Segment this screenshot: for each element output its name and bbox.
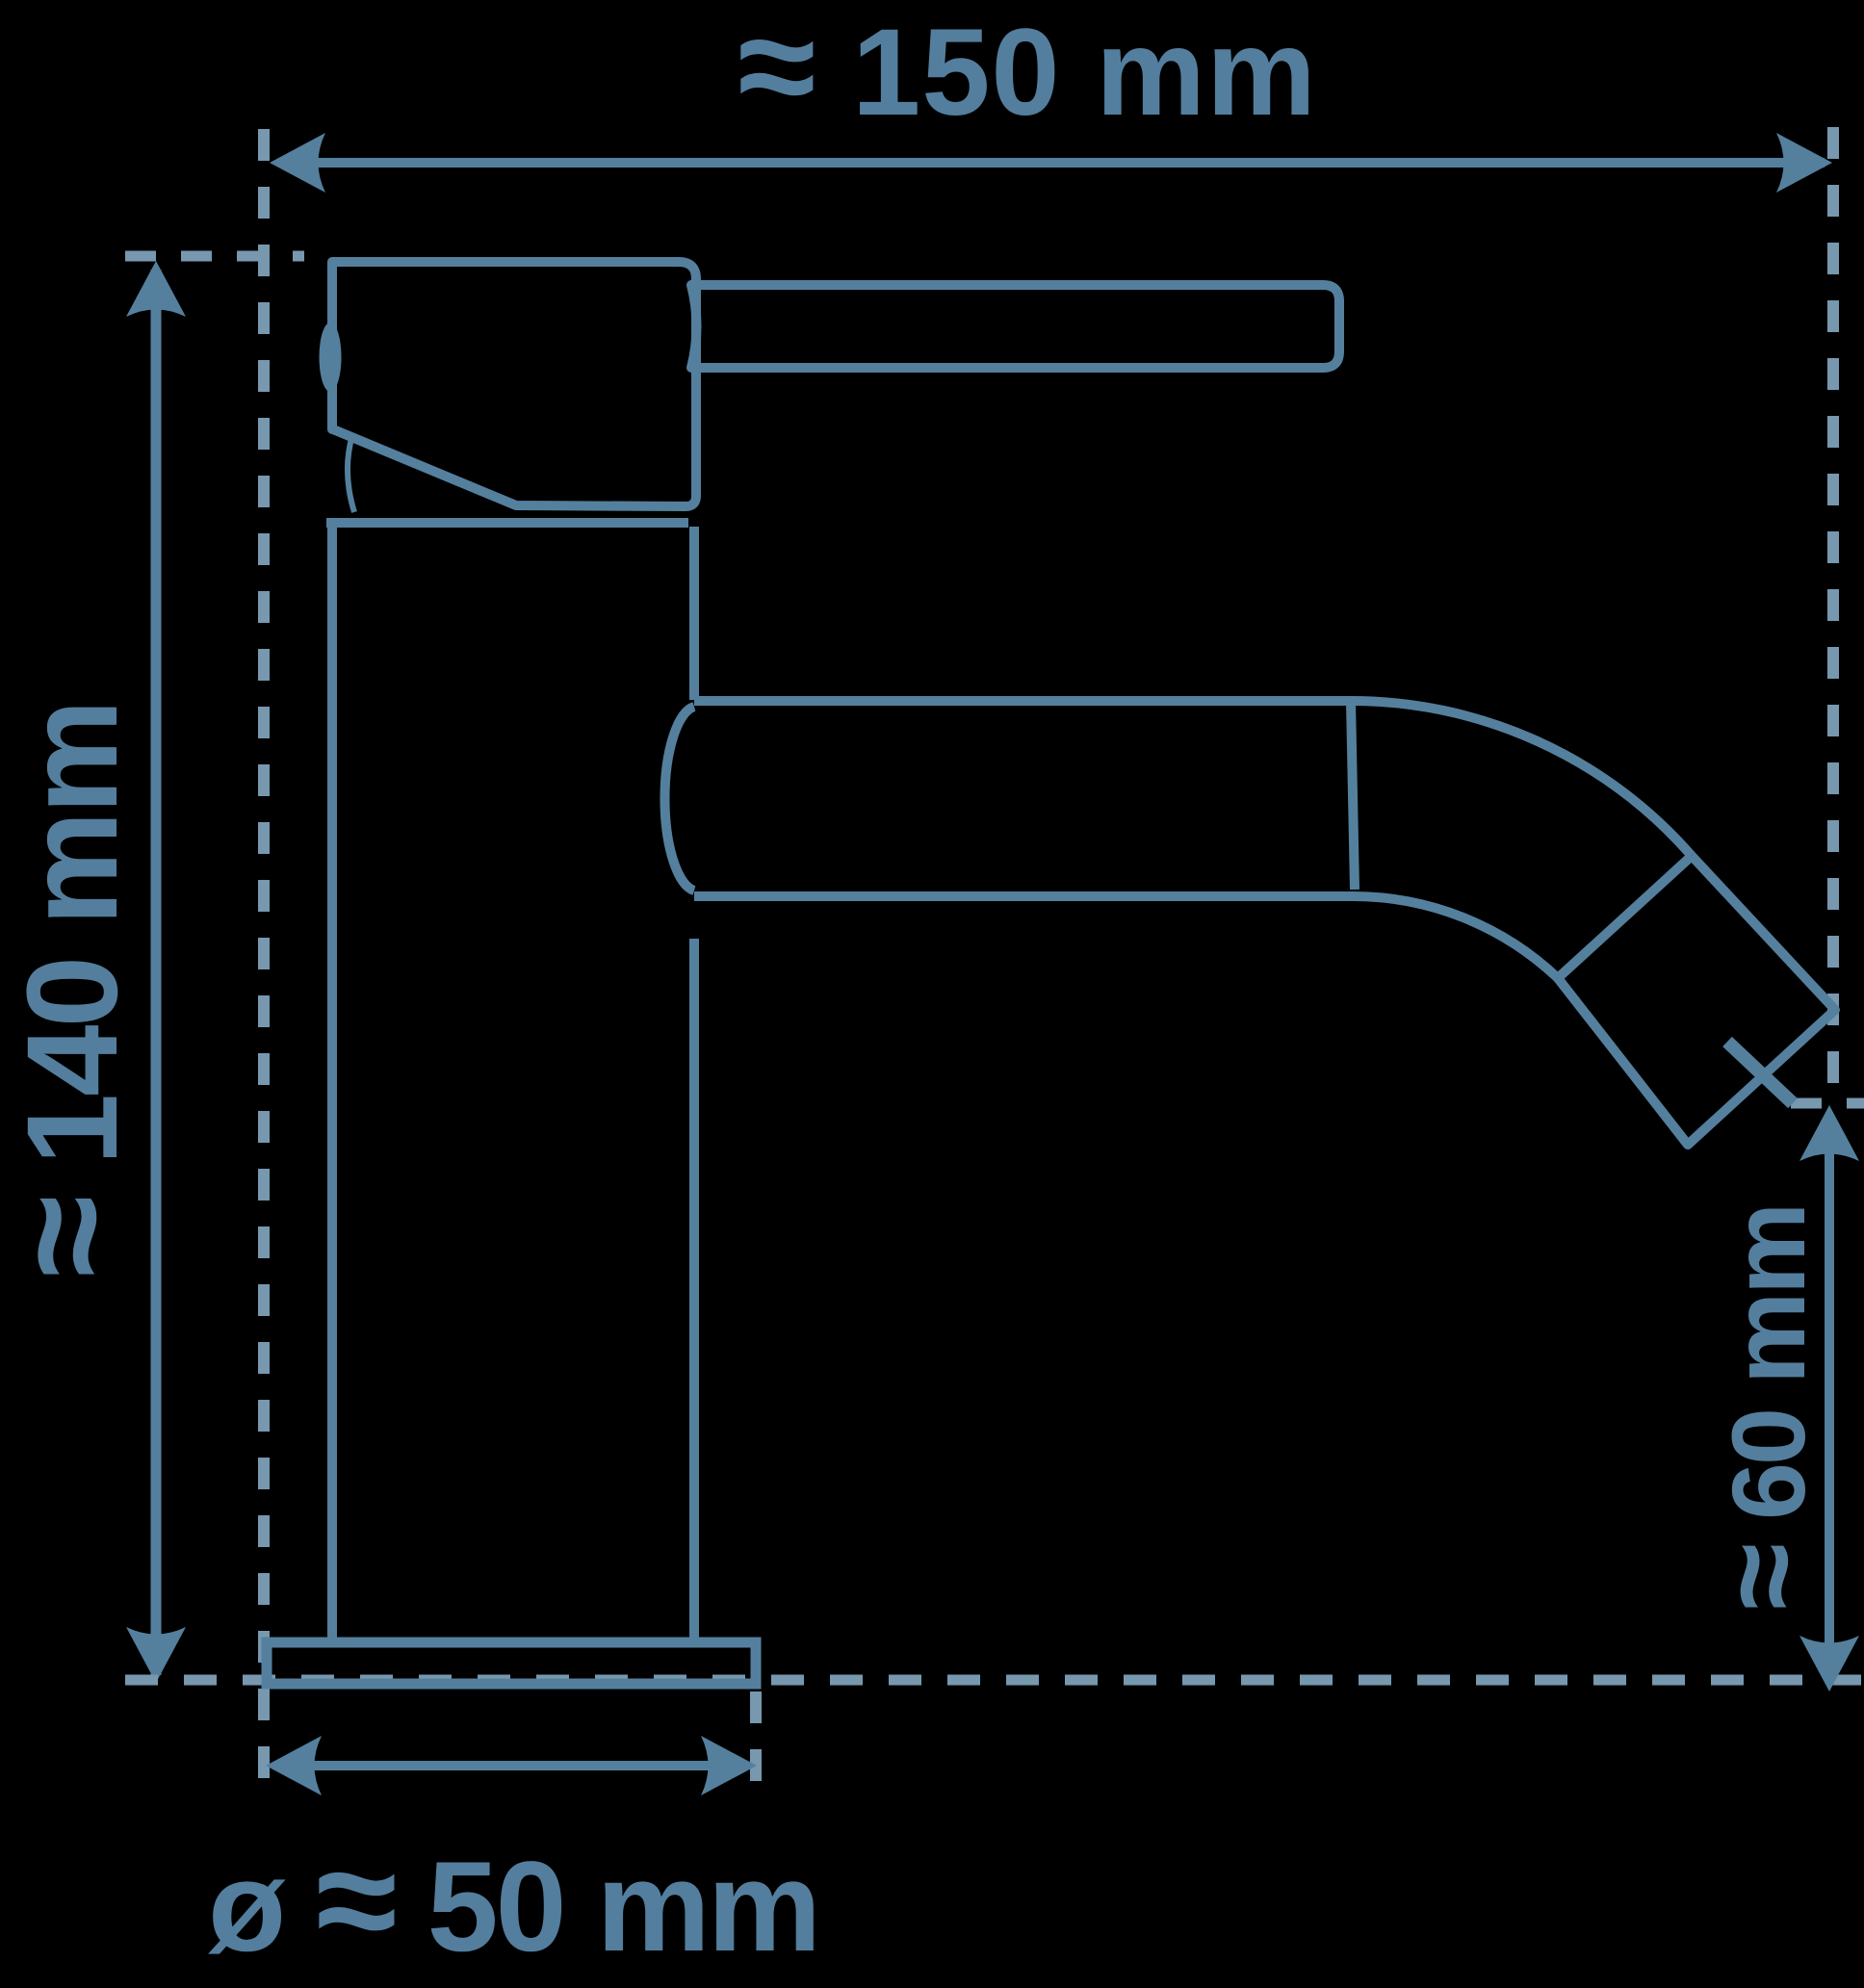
svg-text:ø ≈ 50 mm: ø ≈ 50 mm (208, 1817, 818, 1982)
svg-text:≈ 150 mm: ≈ 150 mm (738, 0, 1317, 145)
svg-text:≈ 60 mm: ≈ 60 mm (1695, 1205, 1830, 1610)
svg-text:≈ 140 mm: ≈ 140 mm (0, 702, 148, 1277)
